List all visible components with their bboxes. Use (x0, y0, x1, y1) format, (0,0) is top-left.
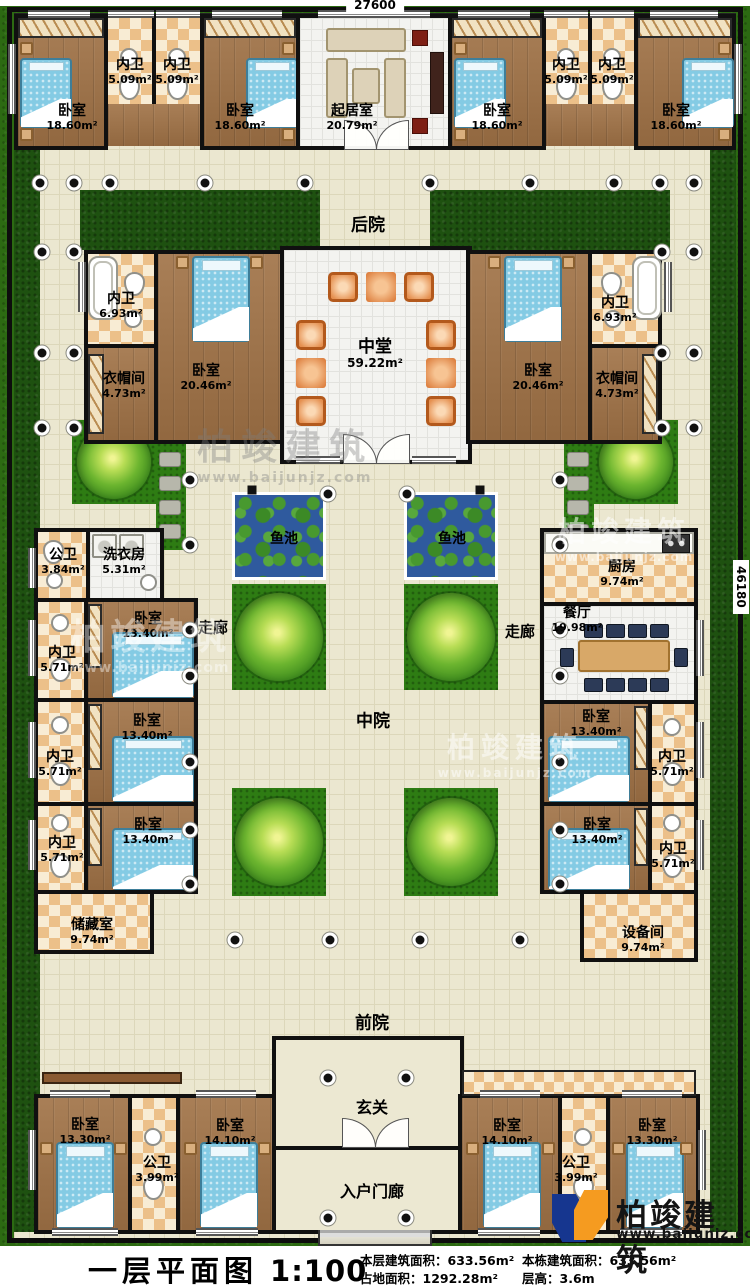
area-label-backyard: 后院 (351, 216, 385, 235)
room-label: 内卫5.09m² (155, 58, 198, 86)
room-name: 内卫 (108, 58, 151, 74)
window-icon (28, 1130, 36, 1190)
room-label: 储藏室9.74m² (70, 918, 113, 946)
dining-chair-icon (628, 678, 647, 692)
room-label: 卧室13.40m² (122, 612, 173, 640)
stat-label: 本层建筑面积： (360, 1253, 448, 1268)
window-icon (78, 262, 86, 312)
dimension-right: 46180 (733, 560, 749, 614)
column-icon (35, 421, 50, 436)
room-area: 5.71m² (650, 766, 693, 778)
room-name: 卧室 (46, 104, 97, 120)
column-icon (400, 487, 415, 502)
room-name: 公卫 (135, 1156, 178, 1172)
nightstand-icon (20, 42, 33, 55)
column-icon (183, 755, 198, 770)
backyard-lawn-left (80, 190, 320, 250)
stat-value: 1292.28m² (423, 1271, 498, 1285)
column-icon (655, 245, 670, 260)
wardrobe-icon (634, 706, 648, 770)
room-label: 内卫5.09m² (544, 58, 587, 86)
window-icon (212, 10, 282, 18)
dining-chair-icon (584, 678, 603, 692)
room-name: 卧室 (512, 364, 563, 380)
nightstand-icon (250, 256, 263, 269)
sofa-icon (384, 58, 406, 118)
room-label: 厨房9.74m² (600, 560, 643, 588)
room-name: 内卫 (155, 58, 198, 74)
room-name: 卧室 (471, 104, 522, 120)
room-area: 13.40m² (122, 628, 173, 640)
room-name: 内卫 (40, 836, 83, 852)
column-icon (653, 176, 668, 191)
column-icon (103, 176, 118, 191)
window-icon (458, 10, 530, 18)
wardrobe-icon (88, 704, 102, 770)
entry-steps (318, 1230, 432, 1246)
window-icon (108, 10, 154, 18)
dining-chair-icon (674, 648, 688, 667)
dining-table-icon (578, 640, 670, 672)
room-area: 20.46m² (180, 380, 231, 392)
toilet-icon (601, 272, 622, 296)
column-icon (607, 176, 622, 191)
floor-plan-canvas: 卧室18.60m² 内卫5.09m² 内卫5.09m² 卧室18.60m² 起居… (0, 0, 750, 1285)
coffee-table-icon (352, 68, 380, 104)
room-label: 内卫5.71m² (38, 750, 81, 778)
room-label: 卧室20.46m² (512, 364, 563, 392)
bed-icon (483, 1142, 541, 1228)
room-label: 内卫6.93m² (593, 296, 636, 324)
room-area: 18.60m² (650, 120, 701, 132)
room-label: 卧室18.60m² (214, 104, 265, 132)
room-label: 洗衣房5.31m² (102, 548, 145, 576)
column-icon (67, 176, 82, 191)
column-icon (323, 933, 338, 948)
nightstand-icon (680, 1142, 693, 1155)
room-label: 内卫5.71m² (40, 646, 83, 674)
column-icon (399, 1211, 414, 1226)
room-label: 内卫5.71m² (40, 836, 83, 864)
room-name: 卧室 (204, 1119, 255, 1135)
dining-chair-icon (560, 648, 574, 667)
tv-cabinet-icon (430, 52, 444, 114)
plan-scale: 1:100 (270, 1254, 367, 1285)
room-label: 衣帽间4.73m² (102, 372, 145, 400)
area-label-entry-hall: 玄关 (356, 1099, 388, 1117)
room-area: 9.74m² (621, 942, 664, 954)
stepping-stone (159, 476, 181, 491)
sink-icon (51, 716, 69, 734)
nightstand-icon (454, 42, 467, 55)
column-icon (687, 176, 702, 191)
column-icon (687, 421, 702, 436)
tree-icon (407, 593, 495, 681)
room-label: 公卫3.99m² (554, 1156, 597, 1184)
room-name: 卧室 (180, 364, 231, 380)
room-label: 衣帽间4.73m² (595, 372, 638, 400)
room-name: 起居室 (326, 104, 377, 120)
room-area: 4.73m² (102, 388, 145, 400)
pier-icon (476, 486, 485, 495)
column-icon (523, 176, 538, 191)
nightstand-icon (282, 42, 295, 55)
window-icon (156, 10, 200, 18)
room-area: 3.99m² (554, 1172, 597, 1184)
chair-icon (404, 272, 434, 302)
column-icon (553, 473, 568, 488)
room-label: 卧室14.10m² (204, 1119, 255, 1147)
wardrobe-icon (204, 18, 296, 38)
window-icon (50, 1090, 110, 1098)
room-area: 3.84m² (41, 564, 84, 576)
room-label: 内卫5.71m² (651, 842, 694, 870)
pier-icon (248, 486, 257, 495)
stat-label: 本栋建筑面积： (522, 1253, 610, 1268)
window-icon (28, 620, 36, 676)
column-icon (298, 176, 313, 191)
stepping-stone (159, 500, 181, 515)
nightstand-icon (562, 256, 575, 269)
room-name: 衣帽间 (595, 372, 638, 388)
room-area: 5.31m² (102, 564, 145, 576)
room-area: 13.40m² (121, 730, 172, 742)
nightstand-icon (454, 128, 467, 141)
bed-icon (112, 736, 194, 802)
room-label: 卧室18.60m² (471, 104, 522, 132)
stat-value: 633.56m² (448, 1253, 515, 1268)
chair-icon (426, 320, 456, 350)
sink-icon (140, 574, 157, 591)
room-label: 卧室13.40m² (571, 818, 622, 846)
room-area: 5.71m² (38, 766, 81, 778)
room-name: 内卫 (38, 750, 81, 766)
column-icon (553, 877, 568, 892)
court-garden-3 (232, 788, 326, 896)
column-icon (321, 1211, 336, 1226)
room-area: 14.10m² (481, 1135, 532, 1147)
column-icon (687, 245, 702, 260)
room-area: 14.10m² (204, 1135, 255, 1147)
column-icon (655, 421, 670, 436)
room-label: 公卫3.84m² (41, 548, 84, 576)
column-icon (513, 933, 528, 948)
nightstand-icon (20, 128, 33, 141)
column-icon (35, 245, 50, 260)
room-area: 13.30m² (626, 1135, 677, 1147)
room-name: 中堂 (347, 338, 403, 357)
window-icon (412, 456, 456, 464)
side-table-icon (426, 358, 456, 388)
column-icon (553, 823, 568, 838)
room-area: 18.60m² (46, 120, 97, 132)
window-icon (28, 820, 36, 870)
column-icon (33, 176, 48, 191)
column-icon (198, 176, 213, 191)
wardrobe-icon (634, 808, 648, 866)
column-icon (67, 421, 82, 436)
room-name: 卧室 (59, 1118, 110, 1134)
room-name: 内卫 (99, 292, 142, 308)
column-icon (413, 933, 428, 948)
column-icon (183, 473, 198, 488)
tree-icon (235, 593, 323, 681)
column-icon (183, 877, 198, 892)
window-icon (478, 1228, 540, 1236)
room-area: 6.93m² (593, 312, 636, 324)
room-area: 13.40m² (570, 726, 621, 738)
nightstand-icon (718, 42, 731, 55)
area-label-front-yard: 前院 (355, 1014, 389, 1033)
column-icon (553, 538, 568, 553)
area-label-corridor-right: 走廊 (505, 624, 535, 641)
room-name: 储藏室 (70, 918, 113, 934)
room-area: 19.98m² (551, 622, 602, 634)
room-name: 内卫 (590, 58, 633, 74)
stat-value: 3.6m (560, 1271, 595, 1285)
room-name: 卧室 (626, 1119, 677, 1135)
room-bedroom-front-r1 (458, 1094, 562, 1234)
nightstand-icon (542, 1142, 555, 1155)
column-icon (321, 487, 336, 502)
room-name: 内卫 (40, 646, 83, 662)
room-area: 59.22m² (347, 357, 403, 370)
area-label-middle-court: 中院 (356, 712, 390, 731)
room-area: 20.46m² (512, 380, 563, 392)
window-icon (196, 1228, 258, 1236)
window-icon (590, 10, 634, 18)
room-area: 18.60m² (471, 120, 522, 132)
sink-icon (574, 1128, 592, 1146)
area-label-fish-pond-left: 鱼池 (270, 532, 298, 548)
wardrobe-icon (88, 808, 102, 866)
nightstand-icon (488, 256, 501, 269)
stepping-stone (567, 452, 589, 467)
room-name: 卧室 (121, 714, 172, 730)
room-label: 设备间9.74m² (621, 926, 664, 954)
stat-label: 层高： (522, 1271, 560, 1285)
room-name: 卧室 (214, 104, 265, 120)
window-icon (544, 10, 588, 18)
room-name: 卧室 (571, 818, 622, 834)
room-area: 13.40m² (571, 834, 622, 846)
dining-chair-icon (606, 678, 625, 692)
room-area: 13.30m² (59, 1134, 110, 1146)
room-area: 5.71m² (40, 662, 83, 674)
dining-chair-icon (650, 624, 669, 638)
room-label: 内卫5.09m² (590, 58, 633, 86)
window-icon (698, 1130, 706, 1190)
room-area: 5.71m² (651, 858, 694, 870)
wardrobe-icon (452, 18, 542, 38)
room-name: 厨房 (600, 560, 643, 576)
nightstand-icon (466, 1142, 479, 1155)
room-name: 卧室 (650, 104, 701, 120)
court-garden-4 (404, 788, 498, 896)
room-name: 内卫 (593, 296, 636, 312)
room-area: 5.09m² (108, 74, 151, 86)
room-name: 餐厅 (551, 606, 602, 622)
column-icon (183, 823, 198, 838)
column-icon (423, 176, 438, 191)
room-label: 卧室13.30m² (626, 1119, 677, 1147)
room-area: 5.09m² (155, 74, 198, 86)
room-bedroom-mid-right (466, 250, 596, 444)
area-label-corridor-left: 走廊 (198, 620, 228, 637)
column-icon (67, 245, 82, 260)
window-icon (8, 44, 16, 114)
plan-title: 一层平面图1:100 (86, 1248, 377, 1285)
room-area: 4.73m² (595, 388, 638, 400)
column-icon (183, 669, 198, 684)
room-label: 公卫3.99m² (135, 1156, 178, 1184)
brand-site: www.baijunjz.com (616, 1226, 750, 1242)
room-label: 卧室18.60m² (650, 104, 701, 132)
room-name: 卧室 (570, 710, 621, 726)
bed-icon (112, 632, 194, 698)
room-name: 卧室 (122, 612, 173, 628)
room-label: 内卫5.71m² (650, 750, 693, 778)
room-area: 13.40m² (122, 834, 173, 846)
room-area: 3.99m² (135, 1172, 178, 1184)
sink-icon (51, 614, 69, 632)
window-icon (696, 620, 704, 676)
room-label: 卧室13.40m² (570, 710, 621, 738)
wardrobe-icon (18, 18, 104, 38)
tree-icon (235, 798, 323, 886)
room-name: 公卫 (41, 548, 84, 564)
room-label: 中堂59.22m² (347, 338, 403, 370)
column-icon (67, 346, 82, 361)
column-icon (399, 1071, 414, 1086)
bed-icon (200, 1142, 258, 1228)
room-label: 卧室20.46m² (180, 364, 231, 392)
window-icon (696, 722, 704, 778)
chair-icon (296, 396, 326, 426)
room-name: 公卫 (554, 1156, 597, 1172)
room-label: 内卫6.93m² (99, 292, 142, 320)
column-icon (183, 538, 198, 553)
column-icon (228, 933, 243, 948)
column-icon (553, 669, 568, 684)
room-area: 5.09m² (590, 74, 633, 86)
plan-title-text: 一层平面图 (88, 1254, 258, 1285)
room-area: 18.60m² (214, 120, 265, 132)
room-bedroom-mid-left (154, 250, 284, 444)
stat-label: 占地面积： (360, 1271, 423, 1285)
backyard-lawn-right (430, 190, 670, 250)
brand-logo: 柏竣建筑 www.baijunjz.com (552, 1190, 750, 1248)
corridor-patch (108, 104, 200, 146)
nightstand-icon (114, 1142, 127, 1155)
plant-stand-icon (412, 118, 428, 134)
room-label: 卧室18.60m² (46, 104, 97, 132)
pergola-strip (42, 1072, 182, 1084)
room-area: 6.93m² (99, 308, 142, 320)
court-garden-1 (232, 584, 326, 690)
stat-floor-area: 本层建筑面积：633.56m² (360, 1250, 514, 1269)
stepping-stone (567, 476, 589, 491)
stat-site-area: 占地面积：1292.28m² (360, 1268, 498, 1285)
room-name: 内卫 (651, 842, 694, 858)
nightstand-icon (282, 128, 295, 141)
plant-stand-icon (412, 30, 428, 46)
nightstand-icon (40, 1142, 53, 1155)
stat-storey-height: 层高：3.6m (522, 1268, 595, 1285)
window-icon (196, 1090, 256, 1098)
wardrobe-icon (88, 604, 102, 668)
column-icon (321, 1071, 336, 1086)
stepping-stone (567, 500, 589, 515)
bed-icon (192, 256, 250, 342)
nightstand-icon (176, 256, 189, 269)
room-label: 内卫5.09m² (108, 58, 151, 86)
room-name: 卧室 (122, 818, 173, 834)
logo-mark-orange-icon (574, 1190, 608, 1240)
bed-icon (56, 1142, 114, 1228)
room-name: 内卫 (544, 58, 587, 74)
room-area: 9.74m² (600, 576, 643, 588)
bed-icon (504, 256, 562, 342)
column-icon (553, 755, 568, 770)
window-icon (696, 820, 704, 870)
sofa-icon (326, 28, 406, 52)
room-label: 餐厅19.98m² (551, 606, 602, 634)
room-name: 洗衣房 (102, 548, 145, 564)
chair-icon (426, 396, 456, 426)
room-bedroom-wing-l3 (84, 802, 198, 894)
dimension-top: 27600 (346, 0, 404, 12)
chair-icon (296, 320, 326, 350)
room-label: 卧室13.40m² (121, 714, 172, 742)
sink-icon (51, 814, 69, 832)
tree-icon (407, 798, 495, 886)
sink-icon (144, 1128, 162, 1146)
area-label-entry-porch: 入户门廊 (340, 1183, 404, 1201)
room-label: 卧室14.10m² (481, 1119, 532, 1147)
window-icon (52, 1228, 118, 1236)
room-name: 衣帽间 (102, 372, 145, 388)
column-icon (687, 346, 702, 361)
room-label: 卧室13.40m² (122, 818, 173, 846)
room-label: 卧室13.30m² (59, 1118, 110, 1146)
court-garden-2 (404, 584, 498, 690)
stepping-stone (159, 452, 181, 467)
nightstand-icon (612, 1142, 625, 1155)
side-table-icon (296, 358, 326, 388)
sink-icon (663, 718, 681, 736)
room-name: 卧室 (481, 1119, 532, 1135)
dining-chair-icon (606, 624, 625, 638)
window-icon (734, 44, 742, 114)
room-label: 起居室20.79m² (326, 104, 377, 132)
room-bedroom-front-l1 (34, 1094, 132, 1234)
room-area: 20.79m² (326, 120, 377, 132)
room-name: 设备间 (621, 926, 664, 942)
nightstand-icon (718, 128, 731, 141)
chair-icon (328, 272, 358, 302)
sink-icon (663, 814, 681, 832)
nightstand-icon (184, 1142, 197, 1155)
window-icon (480, 1090, 540, 1098)
room-area: 9.74m² (70, 934, 113, 946)
column-icon (35, 346, 50, 361)
area-label-fish-pond-right: 鱼池 (438, 532, 466, 548)
corridor-patch (546, 104, 634, 146)
window-icon (650, 10, 718, 18)
column-icon (655, 346, 670, 361)
dining-chair-icon (628, 624, 647, 638)
